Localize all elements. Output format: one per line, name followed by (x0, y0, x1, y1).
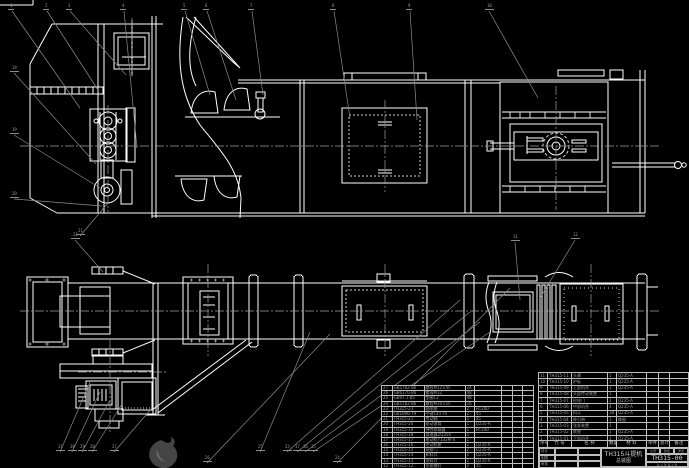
balloon-item-number: 1 (8, 4, 14, 10)
mount-tabs (92, 267, 123, 356)
leader-line (489, 11, 538, 98)
bucket-bolt (256, 92, 265, 98)
balloon-item-number: 12 (571, 233, 580, 239)
top-flanges (344, 70, 623, 80)
leader-line (60, 382, 90, 452)
balloon-item-number: 24 (333, 456, 342, 462)
bom-cell: 2 (465, 463, 474, 468)
balloon-item-number: 8 (330, 4, 336, 10)
bucket-lower-1 (181, 179, 207, 201)
bolt-marks (28, 278, 225, 346)
bom-cell: TH315-12 (392, 463, 424, 468)
leader-line (47, 11, 98, 90)
balloon-item-number: 6 (203, 4, 209, 10)
bom-cell (502, 463, 513, 468)
balloon-item-number: 20 (10, 192, 19, 198)
balloon-item-number: 4 (120, 4, 126, 10)
diagonal-brace (152, 340, 252, 413)
leader-line (260, 332, 310, 452)
balloon-item-number: 7 (248, 4, 254, 10)
cad-drawing-sheet: 27GB5782-86螺栓M12×452426GB6170-86螺母M12482… (0, 0, 689, 468)
balloon-item-number: 18 (10, 66, 19, 72)
balloon-item-number: 11 (511, 235, 520, 241)
leader-line (515, 242, 520, 300)
drawing-title-line2: 总装图 (616, 458, 631, 464)
balloon-item-number: 25 (256, 445, 265, 451)
balloon-item-number: 29 (78, 445, 87, 451)
leader-line (75, 240, 103, 272)
linework-main (0, 0, 675, 428)
sheet-note: 共 1 张 第 1 张 (646, 462, 688, 467)
balloon-item-number: 9 (406, 4, 412, 10)
drawing-number-zone: 比例 数量 重量 TH315-00 共 1 张 第 1 张 (646, 448, 688, 467)
balloon-item-number: 10 (485, 4, 494, 10)
balloon-item-number: 22 (71, 233, 80, 239)
drawing-title-line1: TH315斗提机 (605, 451, 643, 458)
leader-line (14, 135, 100, 188)
leader-line (334, 11, 350, 118)
title-block: 设计 制图 审核 批准 TH315斗提机 总装图 比例 数量 重量 TH315-… (538, 447, 689, 468)
bucket-upper-2 (224, 88, 250, 110)
balloon-item-number: 26 (203, 456, 212, 462)
bucket-upper-1 (191, 91, 218, 113)
balloon-item-number: 31 (56, 445, 65, 451)
side-elevation-view (30, 16, 675, 218)
drawing-title: TH315斗提机 总装图 (601, 448, 646, 467)
leader-line (207, 11, 236, 100)
leader-line (114, 408, 152, 452)
bom-cell: 12 (382, 463, 393, 468)
signature-grid: 设计 制图 审核 批准 (539, 448, 601, 467)
ink-blot (149, 437, 177, 468)
bom-cell (512, 463, 523, 468)
bucket-lower-2 (214, 176, 240, 198)
balloon-item-number: 15 (309, 445, 318, 451)
bom-table-left: 27GB5782-86螺栓M12×452426GB6170-86螺母M12482… (381, 385, 534, 468)
balloon-item-number: 23 (283, 445, 292, 451)
bom-cell (523, 463, 534, 468)
leader-line (12, 11, 80, 108)
sheet-corner (0, 0, 33, 5)
access-panel-elevation (342, 108, 427, 183)
ladder-band (30, 87, 103, 94)
leader-line (540, 240, 575, 298)
bom-cell: 张紧螺杆 (424, 463, 465, 468)
bom-row: 12TH315-12张紧螺杆235 (382, 463, 534, 468)
balloon-item-number: 2 (43, 4, 49, 10)
drive-unit-elevation (487, 82, 675, 213)
leader-line (252, 11, 263, 95)
takeup-rod (612, 163, 675, 167)
bom-cell: 35 (474, 463, 501, 468)
leader-line (410, 11, 417, 120)
leader-line (185, 11, 210, 95)
leader-line (14, 199, 102, 206)
balloon-item-number: 28 (88, 445, 97, 451)
balloon-item-number: 27 (110, 445, 119, 451)
bom-table-right: 11TH315-11头罩1Q235-A10TH315-10护板1Q235-A9T… (538, 372, 689, 442)
drawing-number: TH315-00 (646, 454, 688, 462)
balloon-item-number: 19 (10, 128, 19, 134)
balloon-item-number: 3 (66, 4, 72, 10)
balloon-item-number: 30 (68, 445, 77, 451)
boot-end-cap (27, 277, 68, 347)
balloon-item-number: 5 (181, 4, 187, 10)
